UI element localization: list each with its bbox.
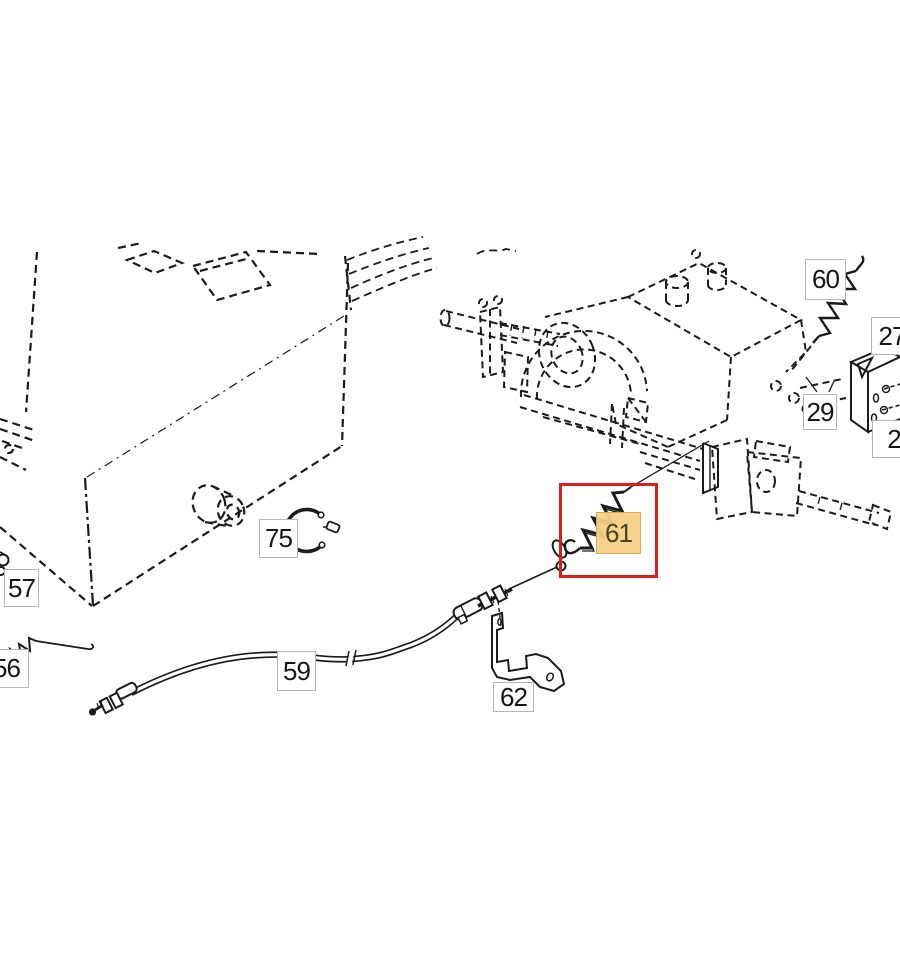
- inner-wire: [509, 567, 557, 589]
- mounting-bracket-62: [492, 613, 564, 691]
- vent-slot-large: [193, 252, 270, 300]
- chassis-outline: [0, 237, 516, 606]
- spring-rod: [631, 441, 709, 487]
- part-label-75[interactable]: 75: [259, 519, 298, 558]
- part-number: 56: [0, 653, 20, 684]
- part-label-62[interactable]: 62: [493, 682, 534, 712]
- part-number: 62: [500, 682, 527, 713]
- part-number: 60: [812, 264, 839, 295]
- part-label-56[interactable]: 56: [0, 649, 29, 688]
- part-label-60[interactable]: 60: [805, 259, 846, 300]
- part-label-27[interactable]: 27: [871, 317, 900, 355]
- cable-adjuster: [478, 585, 512, 609]
- diagram-line-art: [0, 0, 900, 962]
- part-label-59[interactable]: 59: [277, 651, 316, 691]
- part-number: 75: [265, 523, 292, 554]
- part-number: 61: [605, 518, 632, 549]
- cable-end-fitting: [90, 682, 138, 715]
- parts-diagram-page: 57 56 75 59 62 61 60 29 27 2: [0, 0, 900, 962]
- lever-channel: [703, 443, 718, 493]
- part-number: 2: [887, 424, 900, 455]
- part-label-2-cut[interactable]: 2: [872, 420, 900, 458]
- part-number: 29: [807, 397, 834, 428]
- rear-axle-shaft: [796, 491, 891, 529]
- part-number: 27: [879, 321, 900, 352]
- leader-29: [806, 377, 834, 392]
- rear-axle-hub: [712, 439, 801, 519]
- filler-caps: [666, 250, 726, 306]
- vent-slot-small: [127, 251, 182, 273]
- part-label-61-selected[interactable]: 61: [596, 512, 641, 554]
- part-label-57[interactable]: 57: [4, 569, 39, 607]
- muffler-cylinder: [187, 481, 248, 530]
- left-axle-shaft: [441, 310, 520, 343]
- part-number: 57: [8, 573, 35, 604]
- part-number: 59: [283, 656, 310, 687]
- part-label-29[interactable]: 29: [803, 394, 837, 430]
